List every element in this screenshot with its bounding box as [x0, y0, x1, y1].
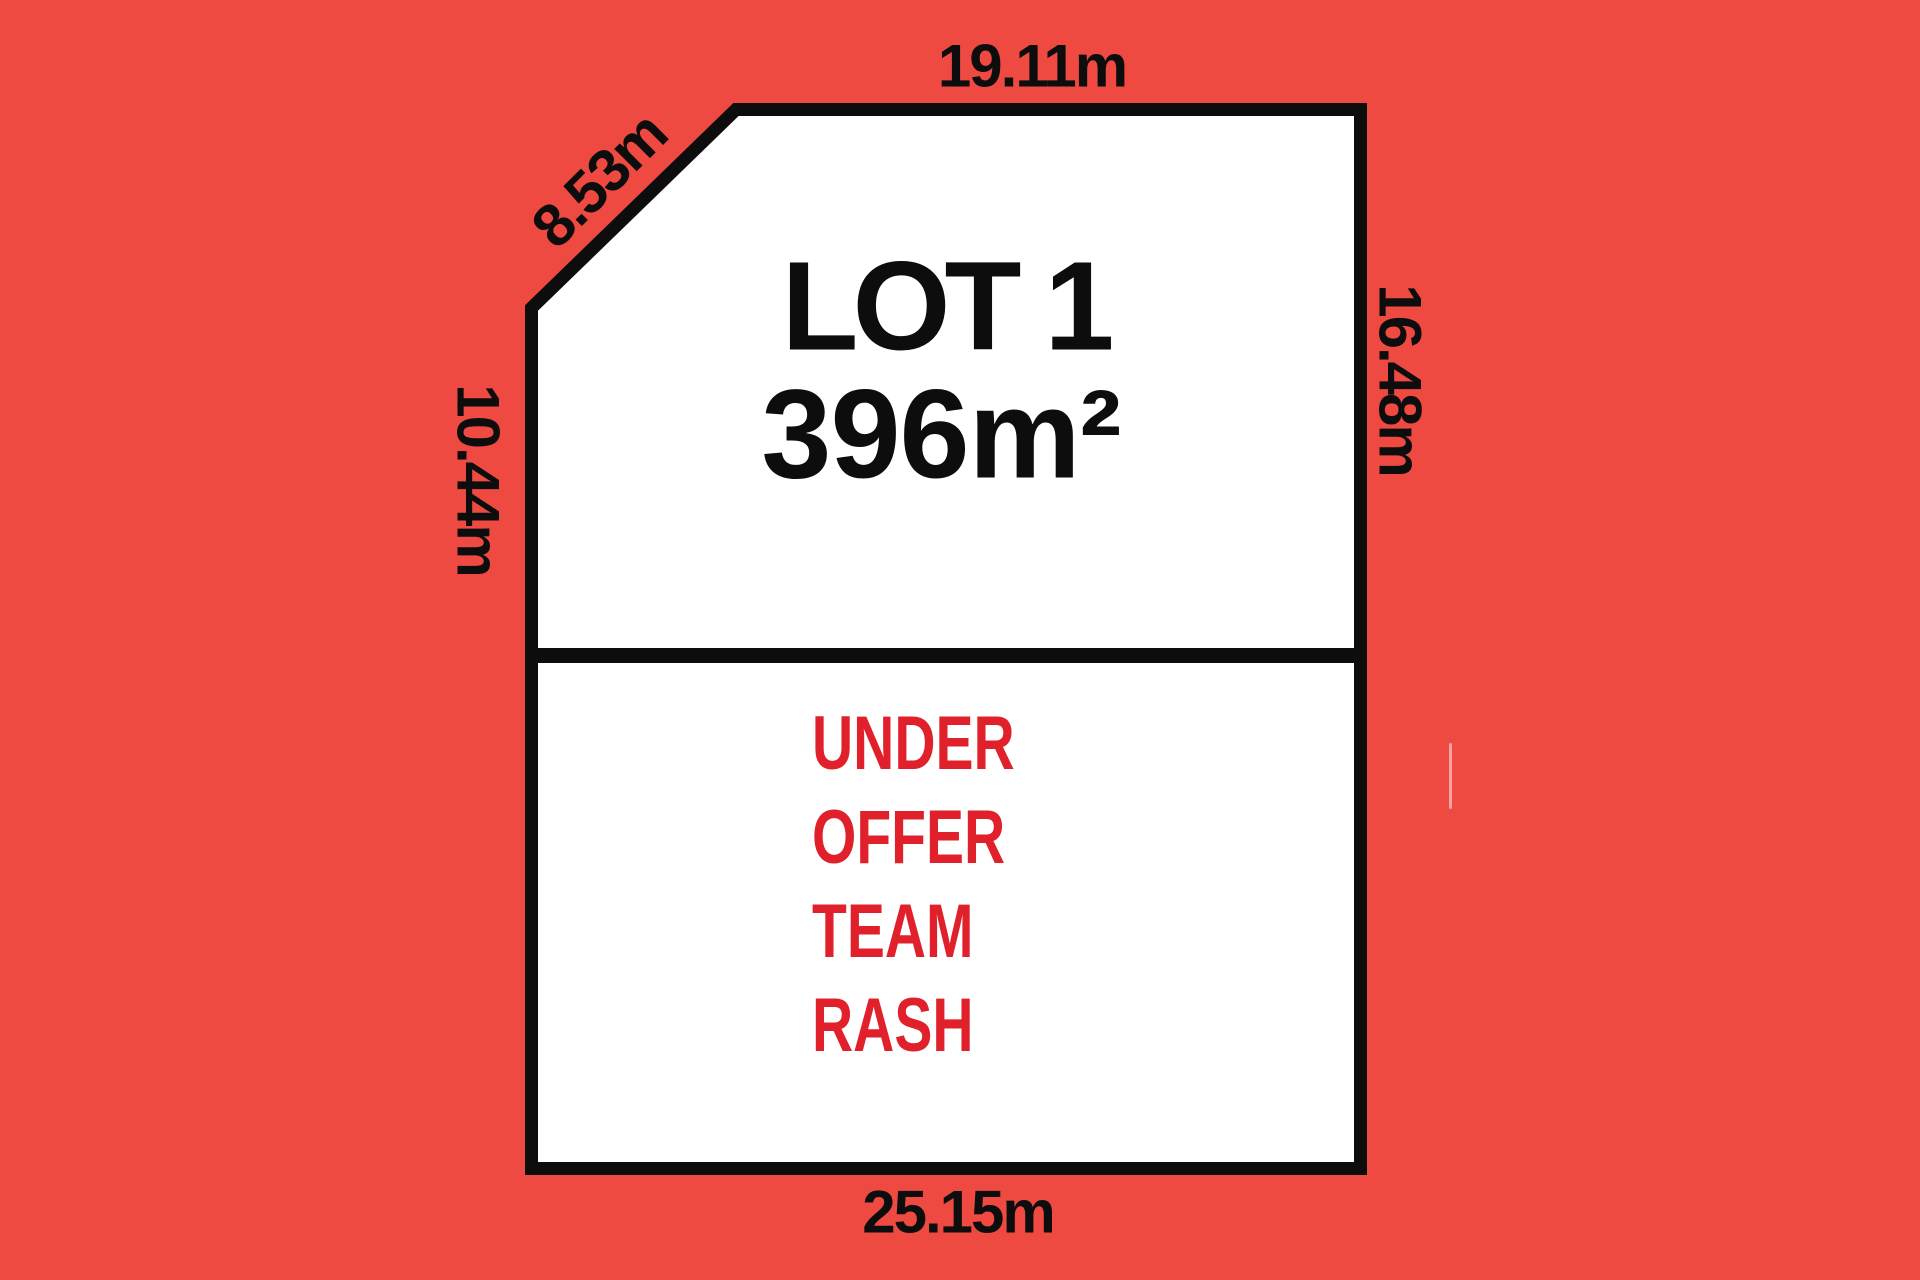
- status-line-under: UNDER: [812, 697, 1015, 791]
- dimension-left: 10.44m: [444, 384, 513, 576]
- watermark-scratch: [1449, 743, 1452, 809]
- status-line-rash: RASH: [812, 979, 1015, 1073]
- lot-plan-drawing: [0, 0, 1920, 1280]
- status-text-block: UNDER OFFER TEAM RASH: [812, 697, 1015, 1073]
- dimension-bottom: 25.15m: [862, 1178, 1054, 1247]
- status-line-team: TEAM: [812, 885, 1015, 979]
- lot-area: 396m²: [761, 362, 1120, 507]
- dimension-right: 16.48m: [1366, 284, 1435, 476]
- status-line-offer: OFFER: [812, 791, 1015, 885]
- dimension-top: 19.11m: [938, 32, 1126, 101]
- lot-plan-canvas: 19.11m 8.53m 10.44m 16.48m 25.15m LOT 1 …: [0, 0, 1920, 1280]
- lot-title: LOT 1: [781, 234, 1108, 379]
